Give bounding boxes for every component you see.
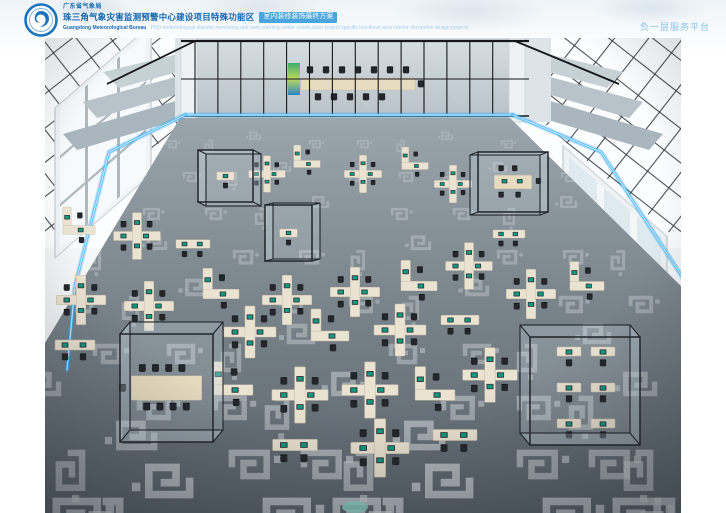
interior-rendering [45,38,681,513]
edge-vignette [45,38,681,513]
render-view [45,38,681,513]
project-title-cn: 珠三角气象灾害监测预警中心建设项目特殊功能区 [63,12,254,23]
final-plan-badge: 室内装修装饰最终方案 [259,12,337,23]
slide-header: 广东省气象局 珠三角气象灾害监测预警中心建设项目特殊功能区 室内装修装饰最终方案… [0,0,726,38]
bureau-logo [24,3,58,37]
project-subtitle-en: PRD meteorological disaster monitoring a… [151,25,469,31]
page-label-floor: 负一层服务平台 [640,20,710,33]
bureau-name-en: Guangdong Meteorological Bureau [63,25,146,31]
bureau-name-cn: 广东省气象局 [63,4,468,11]
header-titles: 广东省气象局 珠三角气象灾害监测预警中心建设项目特殊功能区 室内装修装饰最终方案… [63,4,468,31]
design-proposal-slide: { "header": { "bureau_cn": "广东省气象局", "ti… [0,0,726,513]
